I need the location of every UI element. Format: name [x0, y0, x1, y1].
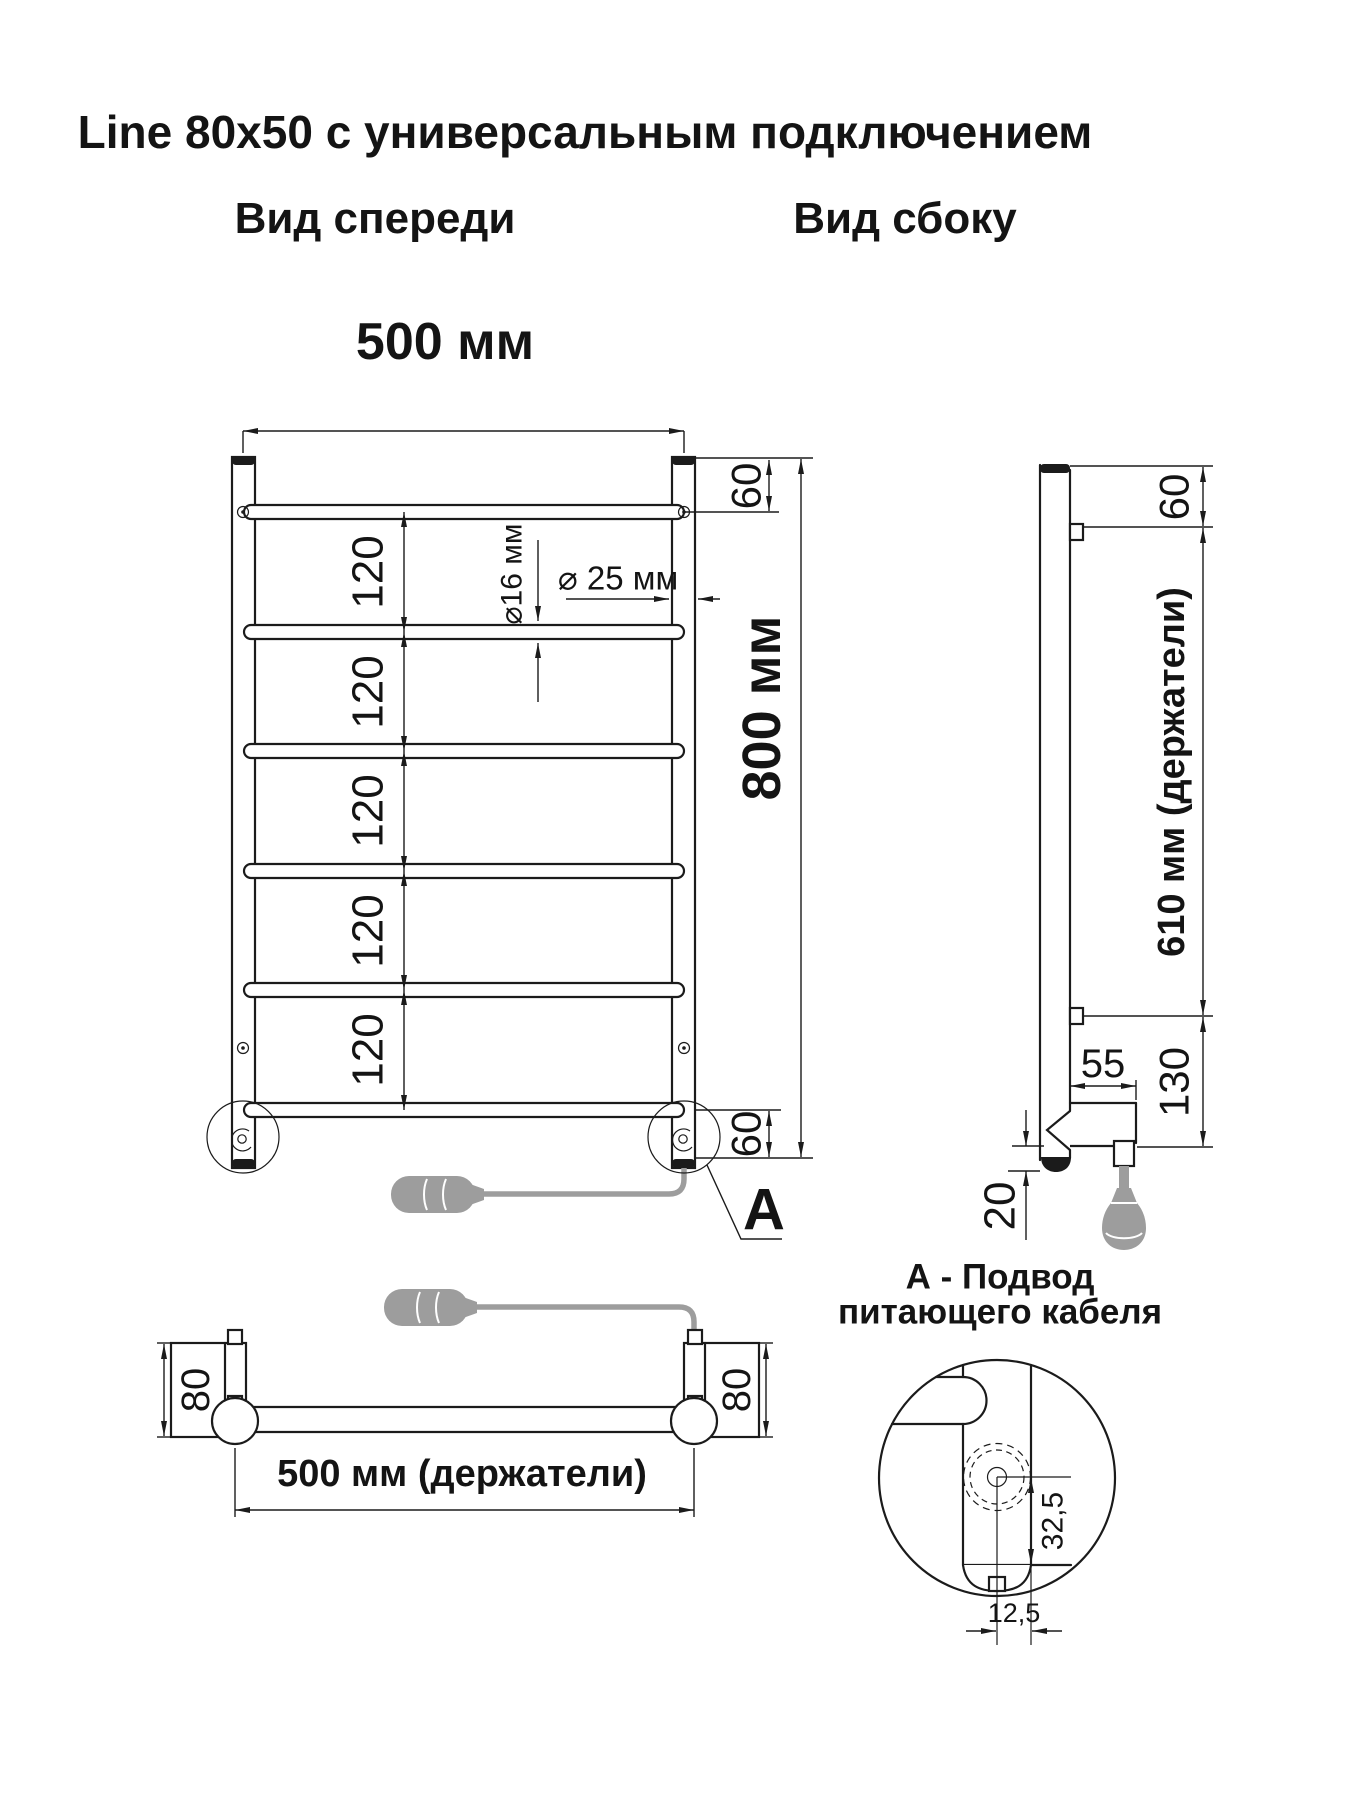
detail-a-title-line1: А - Подвод — [906, 1258, 1095, 1297]
front-view: 500 мм 120 120 120 120 120 ⌀16 мм ⌀ 25 м… — [207, 313, 813, 1243]
detail-a-post — [892, 1365, 1071, 1591]
power-plug-side — [1102, 1166, 1146, 1250]
dim-holders-span: 500 мм (держатели) — [235, 1448, 694, 1517]
front-bars — [244, 505, 684, 1117]
dim-detail-horizontal: 12,5 — [966, 1598, 1062, 1631]
dim-front-width-value: 500 мм — [356, 313, 534, 371]
power-plug-bottom — [384, 1289, 694, 1332]
dim-front-height-value: 800 мм — [732, 616, 792, 801]
dim-detail-vertical-value: 32,5 — [1037, 1492, 1070, 1550]
front-view-label: Вид спереди — [235, 194, 516, 243]
dim-bottom-gap-value: 60 — [723, 1111, 770, 1158]
dim-top-gap: 60 — [684, 460, 779, 512]
dim-detail-vertical: 32,5 — [1031, 1478, 1070, 1564]
dim-post-diameter-value: ⌀ 25 мм — [558, 560, 678, 597]
dim-bar-diameter-value: ⌀16 мм — [496, 523, 529, 624]
dim-side-bottom-span-value: 130 — [1151, 1047, 1198, 1117]
detail-a: А - Подвод питающего кабеля 32,5 — [838, 1258, 1162, 1646]
dim-front-width: 500 мм — [243, 313, 684, 453]
page-title: Line 80x50 с универсальным подключением — [78, 106, 1093, 158]
bottom-left-post-circle — [212, 1398, 258, 1444]
dim-gap-4: 120 — [344, 894, 393, 967]
dim-gap-1: 120 — [344, 535, 393, 608]
dim-gap-3: 120 — [344, 774, 393, 847]
dim-right-depth-value: 80 — [715, 1368, 759, 1413]
side-view: 60 610 мм (держатели) 130 55 20 — [976, 464, 1214, 1250]
dim-bracket-depth: 55 — [1070, 1042, 1136, 1100]
dim-detail-horizontal-value: 12,5 — [988, 1598, 1041, 1628]
side-view-label: Вид сбоку — [793, 194, 1017, 243]
dim-bar-gaps: 120 120 120 120 120 — [344, 512, 405, 1110]
bottom-bar — [235, 1407, 694, 1432]
dim-holders-span-value: 500 мм (держатели) — [277, 1453, 647, 1495]
dim-top-gap-value: 60 — [723, 463, 770, 510]
drawing-canvas: Line 80x50 с универсальным подключением … — [0, 0, 1350, 1800]
power-plug-front — [391, 1168, 684, 1213]
bottom-right-post-circle — [671, 1398, 717, 1444]
dim-bracket-depth-value: 55 — [1081, 1042, 1126, 1086]
callout-a: A — [707, 1165, 785, 1243]
dim-side-holders-value: 610 мм (держатели) — [1151, 587, 1193, 957]
side-top-holder-tab — [1070, 524, 1083, 540]
bottom-view: 80 80 500 мм (держатели) — [157, 1289, 773, 1517]
callout-a-label: A — [743, 1178, 785, 1243]
dim-side-column: 60 610 мм (держатели) 130 — [1151, 467, 1204, 1146]
technical-drawing-page: Line 80x50 с универсальным подключением … — [0, 0, 1350, 1800]
dim-front-height: 800 мм — [695, 458, 813, 1158]
front-left-post — [232, 457, 255, 1168]
dim-cable-drop: 20 — [976, 1110, 1045, 1240]
dim-side-top-gap-value: 60 — [1151, 474, 1198, 521]
side-bottom-holder-tab — [1070, 1008, 1083, 1024]
detail-a-title-line2: питающего кабеля — [838, 1293, 1162, 1332]
dim-cable-drop-value: 20 — [976, 1182, 1025, 1231]
side-bottom-bracket — [1041, 1103, 1136, 1172]
dim-gap-5: 120 — [344, 1013, 393, 1086]
dim-bar-diameter: ⌀16 мм — [496, 523, 539, 702]
dim-gap-2: 120 — [344, 655, 393, 728]
dim-left-depth-value: 80 — [174, 1368, 218, 1413]
dim-bottom-gap: 60 — [695, 1110, 781, 1157]
